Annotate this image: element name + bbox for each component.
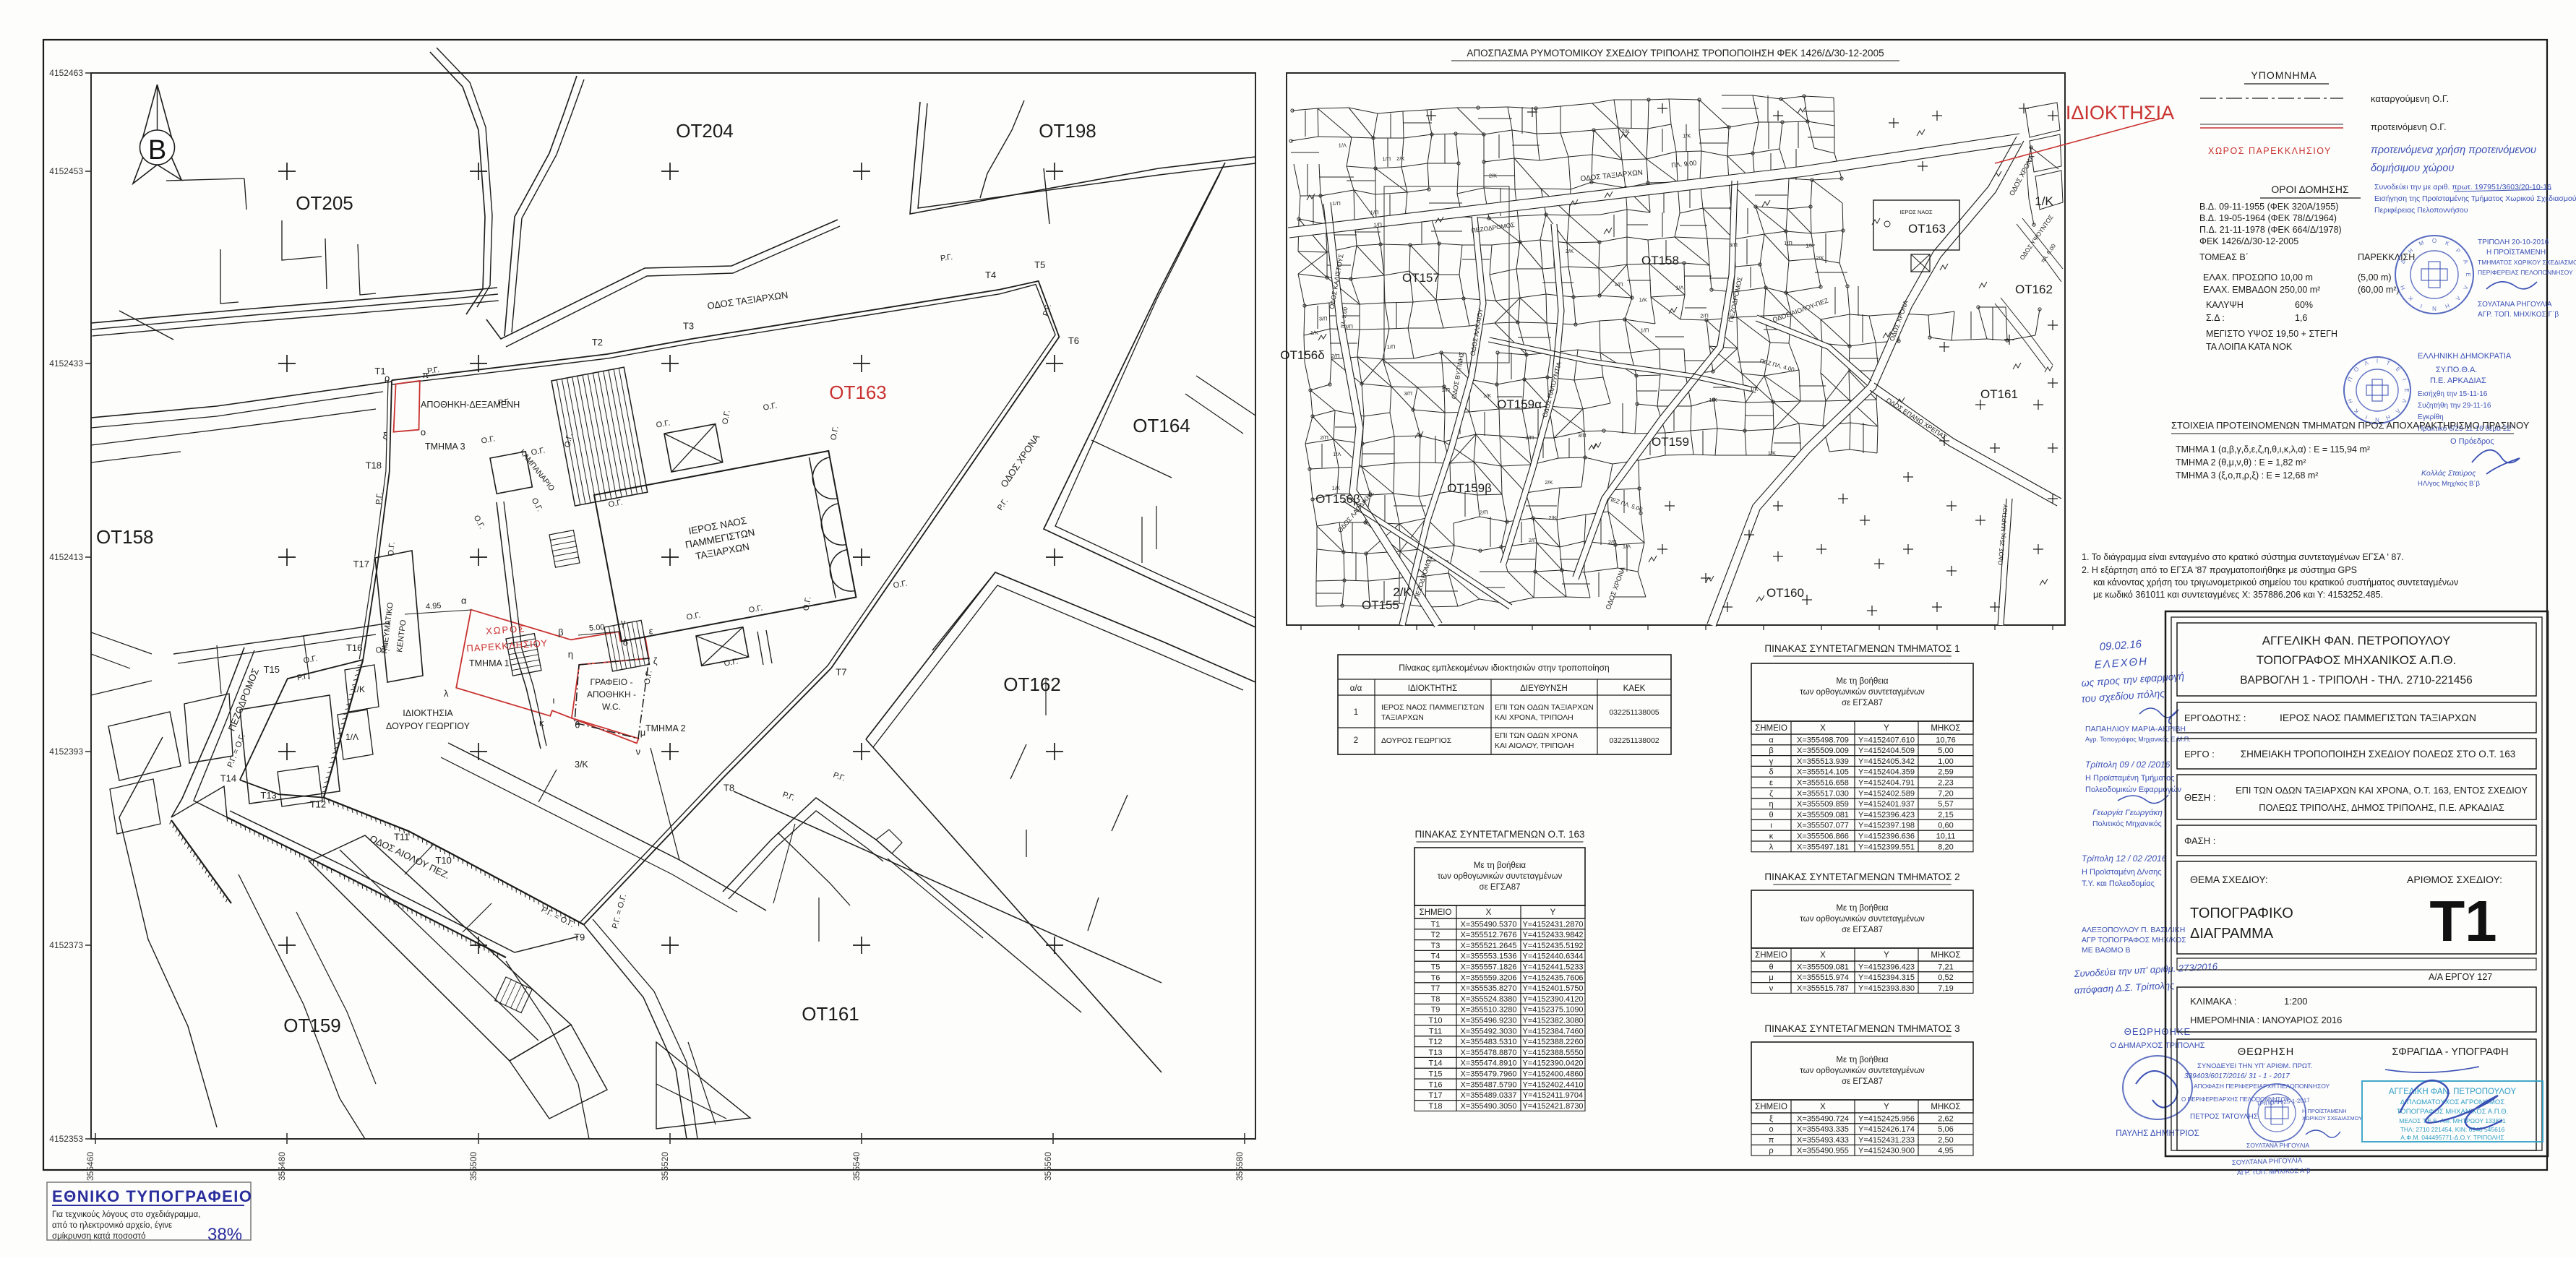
- svg-text:Κολλάς Σταύρος: Κολλάς Σταύρος: [2421, 469, 2476, 478]
- svg-text:ΟΤ161: ΟΤ161: [802, 1003, 859, 1025]
- svg-text:5,06: 5,06: [1938, 1125, 1953, 1134]
- svg-text:T18: T18: [1429, 1102, 1443, 1111]
- svg-text:T8: T8: [724, 782, 734, 793]
- svg-text:1/Κ: 1/Κ: [1709, 397, 1717, 403]
- svg-text:των ορθογωνικών συντεταγμένων: των ορθογωνικών συντεταγμένων: [1800, 688, 1925, 697]
- svg-text:Y=4152375.1090: Y=4152375.1090: [1522, 1006, 1583, 1015]
- svg-text:T2: T2: [592, 337, 603, 348]
- svg-text:Τ.Υ. και Πολεοδομίας: Τ.Υ. και Πολεοδομίας: [2082, 879, 2155, 888]
- svg-text:X=355498.709: X=355498.709: [1797, 736, 1849, 744]
- svg-text:Συζητήθη την 29-11-16: Συζητήθη την 29-11-16: [2418, 401, 2491, 410]
- svg-text:Με τη βοήθεια: Με τη βοήθεια: [1836, 677, 1889, 686]
- svg-text:ε: ε: [649, 626, 653, 637]
- svg-text:Ρ.Γ.: Ρ.Γ.: [940, 253, 953, 263]
- svg-text:10,11: 10,11: [1936, 832, 1956, 841]
- svg-text:2/Π: 2/Π: [1608, 539, 1617, 546]
- svg-text:355580: 355580: [1235, 1152, 1245, 1181]
- svg-text:Η ΠΡΟΪΣΤΑΜΕΝΗ: Η ΠΡΟΪΣΤΑΜΕΝΗ: [2302, 1108, 2347, 1114]
- svg-text:ΑΓΓΕΛΙΚΗ ΦΑΝ. ΠΕΤΡΟΠΟΥΛΟΥ: ΑΓΓΕΛΙΚΗ ΦΑΝ. ΠΕΤΡΟΠΟΥΛΟΥ: [2262, 634, 2451, 647]
- svg-text:ΕΛΑΧ. ΕΜΒΑΔΟΝ 250,00 m²: ΕΛΑΧ. ΕΜΒΑΔΟΝ 250,00 m²: [2203, 285, 2320, 295]
- svg-text:ΟΤ158: ΟΤ158: [96, 526, 154, 548]
- svg-text:T12: T12: [1429, 1038, 1443, 1046]
- svg-text:ΤΡΙΠΟΛΗ 20-10-2016: ΤΡΙΠΟΛΗ 20-10-2016: [2478, 238, 2549, 246]
- svg-text:1/Κ: 1/Κ: [2035, 194, 2053, 208]
- svg-text:Y=4152425.956: Y=4152425.956: [1858, 1114, 1915, 1123]
- svg-text:X=355512.7676: X=355512.7676: [1461, 931, 1517, 939]
- svg-text:ΑΡΙΘΜΟΣ ΣΧΕΔΙΟΥ:: ΑΡΙΘΜΟΣ ΣΧΕΔΙΟΥ:: [2407, 874, 2502, 885]
- svg-text:7,19: 7,19: [1938, 984, 1953, 993]
- svg-text:T14: T14: [1429, 1059, 1443, 1068]
- svg-text:Y=4152396.636: Y=4152396.636: [1858, 832, 1915, 841]
- svg-text:X=355493.335: X=355493.335: [1797, 1125, 1849, 1134]
- svg-text:X=355474.8910: X=355474.8910: [1461, 1059, 1517, 1068]
- svg-text:ΠΟΛΕΩΣ ΤΡΙΠΟΛΗΣ, ΔΗΜΟΣ ΤΡΙΠΟΛΗ: ΠΟΛΕΩΣ ΤΡΙΠΟΛΗΣ, ΔΗΜΟΣ ΤΡΙΠΟΛΗΣ, Π.Ε. ΑΡ…: [2259, 802, 2504, 813]
- svg-text:Y=4152396.423: Y=4152396.423: [1858, 963, 1915, 971]
- svg-text:2/Κ: 2/Κ: [1816, 255, 1824, 262]
- svg-text:δομήσιμου χώρου: δομήσιμου χώρου: [2371, 163, 2454, 174]
- svg-text:X=355487.5790: X=355487.5790: [1461, 1080, 1517, 1089]
- svg-text:Π.Δ. 21-11-1978 (ΦΕΚ 664/Δ/197: Π.Δ. 21-11-1978 (ΦΕΚ 664/Δ/1978): [2199, 225, 2342, 235]
- svg-text:2/Κ: 2/Κ: [1548, 515, 1556, 521]
- svg-text:ν: ν: [636, 746, 641, 757]
- svg-text:Η Προϊσταμένη Δ/νσης: Η Προϊσταμένη Δ/νσης: [2082, 868, 2162, 877]
- svg-text:ΘΕΜΑ ΣΧΕΔΙΟΥ:: ΘΕΜΑ ΣΧΕΔΙΟΥ:: [2190, 874, 2268, 885]
- svg-text:ΣΗΜΕΙΟ: ΣΗΜΕΙΟ: [1755, 951, 1787, 960]
- svg-text:Πίνακας εμπλεκομένων ιδιοκτησι: Πίνακας εμπλεκομένων ιδιοκτησιών στην τρ…: [1399, 663, 1609, 673]
- svg-text:Για τεχνικούς λόγους στο σ: Για τεχνικούς λόγους στο σχεδιάγραμμα,: [52, 1210, 200, 1219]
- svg-text:T13: T13: [1429, 1049, 1443, 1057]
- svg-text:Ε: Ε: [2403, 388, 2410, 392]
- svg-text:2/Π: 2/Π: [1529, 537, 1537, 543]
- svg-text:10,76: 10,76: [1936, 736, 1956, 744]
- svg-text:Y=4152440.6344: Y=4152440.6344: [1522, 952, 1583, 961]
- svg-text:β: β: [558, 627, 563, 637]
- svg-text:2/Κ: 2/Κ: [1622, 128, 1630, 134]
- svg-text:T10: T10: [1429, 1017, 1443, 1025]
- svg-text:Y=4152402.589: Y=4152402.589: [1858, 789, 1915, 798]
- svg-text:1/Π: 1/Π: [1370, 209, 1379, 215]
- svg-text:ΤΜΗΜΑ 1 (α,β,γ,δ,ε,ζ,η,θ,ι,κ,: ΤΜΗΜΑ 1 (α,β,γ,δ,ε,ζ,η,θ,ι,κ,λ,α) : Ε = …: [2176, 444, 2370, 455]
- svg-text:1,00: 1,00: [1938, 757, 1953, 766]
- svg-text:Y=4152384.7460: Y=4152384.7460: [1522, 1027, 1583, 1036]
- svg-text:T1: T1: [1431, 920, 1441, 929]
- svg-text:ΣΟΥΛΤΑΝΑ ΡΗΓΟΥΛΙΑ: ΣΟΥΛΤΑΝΑ ΡΗΓΟΥΛΙΑ: [2246, 1142, 2310, 1149]
- svg-text:ρ: ρ: [1769, 1147, 1773, 1155]
- svg-text:ΦΑΣΗ :: ΦΑΣΗ :: [2184, 835, 2215, 846]
- svg-text:ΑΠΟΣΠΑΣΜΑ ΡΥΜΟΤΟΜΙΚΟΥ ΣΧΕΔΙΟΥ: ΑΠΟΣΠΑΣΜΑ ΡΥΜΟΤΟΜΙΚΟΥ ΣΧΕΔΙΟΥ ΤΡΙΠΟΛΗΣ Τ…: [1467, 48, 1884, 59]
- svg-text:μ: μ: [1769, 973, 1773, 982]
- svg-text:Ο Πρόεδρος: Ο Πρόεδρος: [2450, 437, 2494, 446]
- svg-text:4152353: 4152353: [49, 1134, 83, 1144]
- svg-text:ΕΡΓΟΔΟΤΗΣ :: ΕΡΓΟΔΟΤΗΣ :: [2184, 713, 2246, 723]
- svg-text:ΤΟΠΟΓΡΑΦΟΣ ΜΗΧΑΝΙΚΟΣ Α.Π.Θ.: ΤΟΠΟΓΡΑΦΟΣ ΜΗΧΑΝΙΚΟΣ Α.Π.Θ.: [2397, 1108, 2509, 1116]
- svg-text:ΔΙΕΥΘΥΝΣΗ: ΔΙΕΥΘΥΝΣΗ: [1520, 684, 1568, 693]
- svg-text:θ: θ: [575, 720, 580, 731]
- svg-text:λ: λ: [1769, 843, 1774, 851]
- svg-text:Χ: Χ: [1820, 1103, 1826, 1111]
- svg-text:α: α: [1769, 736, 1774, 744]
- svg-text:Y=4152390.0420: Y=4152390.0420: [1522, 1059, 1583, 1068]
- svg-text:θ: θ: [1769, 963, 1773, 971]
- svg-text:ΣΥ.ΠΟ.Θ.Α.: ΣΥ.ΠΟ.Θ.Α.: [2436, 366, 2477, 374]
- svg-text:3/Π: 3/Π: [1319, 316, 1328, 322]
- svg-text:Β.Δ. 19-05-1964 (ΦΕΚ 78/Δ/1964: Β.Δ. 19-05-1964 (ΦΕΚ 78/Δ/1964): [2199, 213, 2337, 223]
- svg-text:X=355490.5370: X=355490.5370: [1461, 920, 1517, 929]
- svg-text:4152433: 4152433: [49, 358, 83, 369]
- svg-text:Y=4152400.4860: Y=4152400.4860: [1522, 1070, 1583, 1079]
- svg-text:4152373: 4152373: [49, 940, 83, 950]
- svg-text:ΣΥΝΟΔΕΥΕΙ ΤΗΝ ΥΠ' ΑΡΙΘΜ. ΠΡΩΤ.: ΣΥΝΟΔΕΥΕΙ ΤΗΝ ΥΠ' ΑΡΙΘΜ. ΠΡΩΤ.: [2197, 1062, 2312, 1070]
- svg-text:Εισήγηση της Προϊσταμένης Τμήμ: Εισήγηση της Προϊσταμένης Τμήματος Χωρικ…: [2374, 194, 2576, 203]
- svg-text:Υ: Υ: [1884, 1103, 1889, 1111]
- svg-text:3/Π: 3/Π: [1404, 390, 1412, 397]
- svg-text:1/Π: 1/Π: [1615, 281, 1623, 288]
- svg-text:X=355479.7960: X=355479.7960: [1461, 1070, 1517, 1079]
- svg-text:Με τη βοήθεια: Με τη βοήθεια: [1836, 904, 1889, 913]
- svg-text:γ: γ: [1769, 757, 1774, 766]
- svg-text:ΣΤΟΙΧΕΙΑ ΠΡΟΤΕΙΝΟΜΕΝΩΝ ΤΜΗΜΑΤΩ: ΣΤΟΙΧΕΙΑ ΠΡΟΤΕΙΝΟΜΕΝΩΝ ΤΜΗΜΑΤΩΝ ΠΡΟΣ ΑΠΟ…: [2171, 420, 2530, 431]
- svg-text:ΕΛΑΧ. ΠΡΟΣΩΠΟ 10,00 m: ΕΛΑΧ. ΠΡΟΣΩΠΟ 10,00 m: [2203, 272, 2313, 283]
- svg-text:60%: 60%: [2295, 300, 2313, 310]
- svg-text:T4: T4: [985, 270, 996, 280]
- svg-text:1/Λ: 1/Λ: [1675, 285, 1683, 291]
- svg-text:2/Π: 2/Π: [1331, 353, 1340, 359]
- svg-text:X=355490.724: X=355490.724: [1797, 1114, 1849, 1123]
- svg-text:Η ΠΡΟΪΣΤΑΜΕΝΗ: Η ΠΡΟΪΣΤΑΜΕΝΗ: [2486, 248, 2546, 257]
- svg-text:ΤΜΗΜΑΤΟΣ ΧΩΡΙΚΟΥ ΣΧΕΔΙΑΣΜΟΥ: ΤΜΗΜΑΤΟΣ ΧΩΡΙΚΟΥ ΣΧΕΔΙΑΣΜΟΥ: [2478, 259, 2576, 266]
- svg-text:σμίκρυνση κατά ποσοστό: σμίκρυνση κατά ποσοστό: [52, 1232, 145, 1241]
- svg-text:ΟΡΟΙ ΔΟΜΗΣΗΣ: ΟΡΟΙ ΔΟΜΗΣΗΣ: [2271, 184, 2349, 195]
- svg-text:ΘΕΣΗ :: ΘΕΣΗ :: [2184, 792, 2215, 803]
- svg-text:ΟΤ162: ΟΤ162: [2015, 283, 2053, 296]
- svg-text:T12: T12: [310, 799, 326, 810]
- svg-text:ΟΤ198: ΟΤ198: [1039, 120, 1096, 142]
- svg-text:ΦΕΚ 1426/Δ/30-12-2005: ΦΕΚ 1426/Δ/30-12-2005: [2199, 236, 2298, 246]
- svg-text:ζ: ζ: [1769, 789, 1773, 798]
- svg-text:032251138002: 032251138002: [1609, 736, 1659, 745]
- svg-text:2,15: 2,15: [1938, 811, 1953, 819]
- svg-text:2/Κ: 2/Κ: [1489, 173, 1497, 179]
- svg-text:ΙΕΡΟΣ ΝΑΟΣ ΠΑΜΜΕΓΙΣΤΩΝ: ΙΕΡΟΣ ΝΑΟΣ ΠΑΜΜΕΓΙΣΤΩΝ: [1381, 703, 1484, 712]
- svg-text:X=355515.974: X=355515.974: [1797, 973, 1849, 982]
- svg-text:ΔΟΥΡΟΥ ΓΕΩΡΓΙΟΥ: ΔΟΥΡΟΥ ΓΕΩΡΓΙΟΥ: [386, 721, 471, 731]
- svg-text:T11: T11: [394, 831, 409, 842]
- svg-text:Y=4152441.5233: Y=4152441.5233: [1522, 963, 1583, 972]
- svg-text:ΣΗΜΕΙΟ: ΣΗΜΕΙΟ: [1755, 724, 1787, 733]
- svg-text:Γεωργία Γεωργάκη: Γεωργία Γεωργάκη: [2092, 809, 2163, 817]
- svg-text:ΤΜΗΜΑ 2 (θ,μ,ν,θ) : Ε = 1,82: ΤΜΗΜΑ 2 (θ,μ,ν,θ) : Ε = 1,82 m²: [2176, 457, 2306, 468]
- svg-text:Α/Α ΕΡΓΟΥ 127: Α/Α ΕΡΓΟΥ 127: [2429, 972, 2492, 982]
- svg-text:ΜΕΓΙΣΤΟ ΥΨΟΣ 19,50 + ΣΤΕΓΗ: ΜΕΓΙΣΤΟ ΥΨΟΣ 19,50 + ΣΤΕΓΗ: [2206, 329, 2337, 339]
- svg-text:ΥΠΟΜΝΗΜΑ: ΥΠΟΜΝΗΜΑ: [2251, 69, 2317, 81]
- svg-text:ΜΗΚΟΣ: ΜΗΚΟΣ: [1931, 951, 1960, 960]
- svg-text:5,57: 5,57: [1938, 800, 1953, 809]
- svg-text:Ρ.Γ.: Ρ.Γ.: [426, 366, 439, 376]
- svg-text:Y=4152405.342: Y=4152405.342: [1858, 757, 1915, 766]
- svg-text:ΟΤ164: ΟΤ164: [1133, 415, 1190, 436]
- svg-text:σε ΕΓΣΑ87: σε ΕΓΣΑ87: [1480, 883, 1521, 892]
- svg-text:ΟΤ163: ΟΤ163: [1908, 222, 1946, 236]
- svg-text:προτεινόμενα χρήση προτεινόμεν: προτεινόμενα χρήση προτεινόμενου: [2371, 145, 2536, 156]
- svg-text:1:200: 1:200: [2284, 996, 2308, 1007]
- svg-text:3/Π: 3/Π: [1578, 432, 1587, 439]
- svg-text:ΟΤ163: ΟΤ163: [829, 382, 887, 403]
- svg-text:Y=4152393.830: Y=4152393.830: [1858, 984, 1915, 993]
- svg-text:ΙΕΡΟΣ ΝΑΟΣ: ΙΕΡΟΣ ΝΑΟΣ: [1899, 209, 1933, 215]
- svg-text:4152463: 4152463: [49, 68, 83, 78]
- svg-text:X=355509.009: X=355509.009: [1797, 746, 1849, 755]
- svg-text:Y=4152388.5550: Y=4152388.5550: [1522, 1049, 1583, 1057]
- svg-text:ξ: ξ: [383, 431, 387, 442]
- svg-text:1,6: 1,6: [2295, 313, 2307, 323]
- svg-text:1: 1: [1354, 708, 1358, 717]
- svg-text:ΤΜΗΜΑ 2: ΤΜΗΜΑ 2: [645, 723, 686, 733]
- svg-text:355520: 355520: [660, 1152, 670, 1181]
- svg-text:38%: 38%: [207, 1225, 242, 1244]
- svg-text:1/Λ: 1/Λ: [1339, 142, 1347, 149]
- svg-text:ΚΑΙ ΧΡΟΝΑ, ΤΡΙΠΟΛΗ: ΚΑΙ ΧΡΟΝΑ, ΤΡΙΠΟΛΗ: [1495, 713, 1573, 722]
- svg-text:ΠΙΝΑΚΑΣ ΣΥΝΤΕΤΑΓΜΕΝΩΝ Ο.Τ. 163: ΠΙΝΑΚΑΣ ΣΥΝΤΕΤΑΓΜΕΝΩΝ Ο.Τ. 163: [1414, 829, 1584, 840]
- svg-text:ν: ν: [1769, 984, 1774, 993]
- svg-text:Υ: Υ: [1550, 908, 1556, 917]
- svg-text:ο: ο: [421, 427, 426, 438]
- svg-text:Χ: Χ: [1820, 724, 1826, 733]
- svg-text:ΤΟΠΟΓΡΑΦΙΚΟ: ΤΟΠΟΓΡΑΦΙΚΟ: [2190, 905, 2293, 921]
- svg-text:ΟΤ159β: ΟΤ159β: [1447, 481, 1492, 495]
- svg-text:ΟΤ159α: ΟΤ159α: [1497, 397, 1542, 411]
- svg-text:1/Κ: 1/Κ: [1639, 297, 1647, 304]
- svg-text:2/Κ: 2/Κ: [1545, 479, 1553, 486]
- svg-text:2/Π: 2/Π: [1480, 509, 1488, 515]
- svg-text:Σ.Δ :: Σ.Δ :: [2206, 313, 2225, 323]
- svg-text:ΑΛΕΞΟΠΟΥΛΟΥ Π. ΒΑΣΙΛΙΚΗ: ΑΛΕΞΟΠΟΥΛΟΥ Π. ΒΑΣΙΛΙΚΗ: [2082, 926, 2185, 934]
- svg-text:1/Π: 1/Π: [1387, 343, 1396, 350]
- svg-text:X=355493.433: X=355493.433: [1797, 1136, 1849, 1145]
- svg-text:1. Το διάγραμμα είναι ενταγμέν: 1. Το διάγραμμα είναι ενταγμένο στο κρατ…: [2082, 552, 2404, 562]
- svg-text:B: B: [148, 135, 166, 165]
- svg-text:α/α: α/α: [1350, 684, 1362, 693]
- svg-text:Y=4152401.5750: Y=4152401.5750: [1522, 984, 1583, 993]
- svg-text:X=355557.1826: X=355557.1826: [1461, 963, 1517, 972]
- svg-text:Ο ΔΗΜΑΡΧΟΣ ΤΡΙΠΟΛΗΣ: Ο ΔΗΜΑΡΧΟΣ ΤΡΙΠΟΛΗΣ: [2110, 1041, 2204, 1050]
- svg-text:ΚΛΙΜΑΚΑ :: ΚΛΙΜΑΚΑ :: [2190, 996, 2236, 1007]
- svg-text:4,95: 4,95: [1938, 1147, 1953, 1155]
- svg-text:1/Κ: 1/Κ: [1483, 392, 1491, 399]
- svg-text:Y=4152402.4410: Y=4152402.4410: [1522, 1080, 1583, 1089]
- svg-text:1/Π: 1/Π: [1373, 221, 1382, 228]
- svg-text:ΧΩΡΙΚΟΥ ΣΧΕΔΙΑΣΜΟΥ: ΧΩΡΙΚΟΥ ΣΧΕΔΙΑΣΜΟΥ: [2302, 1115, 2362, 1122]
- svg-text:Τρίπολη 12 / 02 /2016: Τρίπολη 12 / 02 /2016: [2082, 853, 2167, 864]
- svg-text:ΙΔΙΟΚΤΗΣΙΑ: ΙΔΙΟΚΤΗΣΙΑ: [2066, 102, 2174, 124]
- svg-text:4152393: 4152393: [49, 746, 83, 757]
- svg-text:X=355524.8380: X=355524.8380: [1461, 995, 1517, 1004]
- svg-text:Y=4152433.9842: Y=4152433.9842: [1522, 931, 1583, 939]
- svg-text:ΤΜΗΜΑ 3: ΤΜΗΜΑ 3: [425, 442, 465, 452]
- svg-text:Ο.Γ.: Ο.Γ.: [387, 541, 397, 556]
- svg-text:Α.Φ.Μ. 044495771-Δ.Ο.Υ. ΤΡΙΠΟΛ: Α.Φ.Μ. 044495771-Δ.Ο.Υ. ΤΡΙΠΟΛΗΣ: [2400, 1134, 2504, 1141]
- svg-text:ΟΤ159: ΟΤ159: [283, 1015, 341, 1036]
- svg-text:Ι: Ι: [2377, 358, 2378, 364]
- svg-text:Περιφέρειας Πελοποννήσου: Περιφέρειας Πελοποννήσου: [2374, 206, 2468, 215]
- svg-text:των ορθογωνικών συντεταγμένων: των ορθογωνικών συντεταγμένων: [1800, 1067, 1925, 1075]
- svg-text:X=355490.955: X=355490.955: [1797, 1147, 1849, 1155]
- svg-text:X=355535.8270: X=355535.8270: [1461, 984, 1517, 993]
- svg-text:Ρ.Γ.: Ρ.Γ.: [374, 492, 384, 505]
- svg-text:4.95: 4.95: [426, 601, 442, 611]
- svg-text:T18: T18: [366, 460, 382, 470]
- svg-text:ο: ο: [1769, 1125, 1773, 1134]
- svg-text:X=355521.2645: X=355521.2645: [1461, 942, 1517, 950]
- svg-text:Ο: Ο: [2432, 238, 2437, 244]
- svg-text:ΑΓΡ. ΤΟΠ. ΜΗΧ/ΚΟΣ Γ΄β: ΑΓΡ. ΤΟΠ. ΜΗΧ/ΚΟΣ Γ΄β: [2478, 310, 2559, 319]
- svg-text:Y=4152430.900: Y=4152430.900: [1858, 1147, 1915, 1155]
- svg-text:X=355553.1536: X=355553.1536: [1461, 952, 1517, 961]
- svg-text:καταργούμενη Ο.Γ.: καταργούμενη Ο.Γ.: [2371, 93, 2449, 104]
- svg-text:Χ: Χ: [1820, 951, 1826, 960]
- svg-text:X=355514.105: X=355514.105: [1797, 768, 1849, 777]
- svg-text:T15: T15: [264, 664, 280, 675]
- svg-text:ΟΤ156δ: ΟΤ156δ: [1280, 348, 1324, 362]
- svg-text:Y=4152435.5192: Y=4152435.5192: [1522, 942, 1583, 950]
- svg-text:T4: T4: [1431, 952, 1441, 961]
- svg-text:1/Λ: 1/Λ: [1333, 451, 1341, 457]
- svg-text:δ: δ: [1769, 768, 1773, 777]
- svg-text:Y=4152399.551: Y=4152399.551: [1858, 843, 1915, 851]
- svg-text:λ: λ: [444, 688, 449, 699]
- svg-text:339403/6017/2016/ 31 - 1 - 201: 339403/6017/2016/ 31 - 1 - 2017: [2184, 1072, 2290, 1080]
- svg-text:T17: T17: [1429, 1091, 1443, 1100]
- svg-text:σε ΕΓΣΑ87: σε ΕΓΣΑ87: [1842, 926, 1883, 934]
- svg-text:T16: T16: [346, 642, 362, 653]
- svg-text:Αγρ. Τοπογράφος Μηχανικός Ε.Μ.: Αγρ. Τοπογράφος Μηχανικός Ε.Μ.Π.: [2085, 736, 2191, 743]
- svg-text:Y=4152435.7606: Y=4152435.7606: [1522, 973, 1583, 982]
- svg-text:ΟΤ157: ΟΤ157: [1402, 271, 1440, 285]
- svg-text:2/Κ: 2/Κ: [1393, 585, 1412, 599]
- svg-text:ΟΤ204: ΟΤ204: [676, 120, 734, 142]
- svg-text:T8: T8: [1431, 995, 1441, 1004]
- svg-text:ΠΑΡΕΚΚΛΙΣΗ: ΠΑΡΕΚΚΛΙΣΗ: [2358, 252, 2415, 262]
- svg-text:Y=4152407.610: Y=4152407.610: [1858, 736, 1915, 744]
- svg-text:ΣΦΡΑΓΙΔΑ - ΥΠΟΓΡΑΦΗ: ΣΦΡΑΓΙΔΑ - ΥΠΟΓΡΑΦΗ: [2392, 1046, 2508, 1058]
- svg-text:4152413: 4152413: [49, 552, 83, 562]
- svg-text:(60,00 m²): (60,00 m²): [2358, 285, 2400, 295]
- svg-text:X=355509.081: X=355509.081: [1797, 963, 1849, 971]
- svg-text:T11: T11: [1429, 1027, 1442, 1036]
- svg-text:T17: T17: [353, 559, 369, 569]
- svg-text:ΜΕ ΒΑΘΜΟ Β: ΜΕ ΒΑΘΜΟ Β: [2082, 946, 2130, 955]
- svg-text:X=355489.0337: X=355489.0337: [1461, 1091, 1517, 1100]
- svg-text:Με τη βοήθεια: Με τη βοήθεια: [1836, 1056, 1889, 1064]
- svg-text:7,20: 7,20: [1938, 789, 1953, 798]
- svg-text:θ: θ: [1769, 811, 1773, 819]
- svg-text:T7: T7: [1431, 984, 1441, 993]
- svg-text:ΙΔΙΟΚΤΗΤΗΣ: ΙΔΙΟΚΤΗΤΗΣ: [1408, 684, 1457, 693]
- svg-text:ΙΔΙΟΚΤΗΣΙΑ: ΙΔΙΟΚΤΗΣΙΑ: [403, 708, 453, 718]
- svg-text:Με τη βοήθεια: Με τη βοήθεια: [1474, 861, 1527, 870]
- svg-text:από το ηλεκτρονικό αρχείο, έγι: από το ηλεκτρονικό αρχείο, έγινε: [52, 1221, 172, 1230]
- svg-text:ΣΗΜΕΙΑΚΗ ΤΡΟΠΟΠΟΙΗΣΗ ΣΧΕΔΙΟΥ Π: ΣΗΜΕΙΑΚΗ ΤΡΟΠΟΠΟΙΗΣΗ ΣΧΕΔΙΟΥ ΠΟΛΕΩΣ ΣΤΟ …: [2241, 749, 2516, 759]
- svg-text:2/Κ: 2/Κ: [1396, 155, 1404, 162]
- svg-text:X=355559.3206: X=355559.3206: [1461, 973, 1517, 982]
- svg-text:ΚΑΕΚ: ΚΑΕΚ: [1623, 684, 1646, 693]
- svg-text:1/Π: 1/Π: [1332, 200, 1341, 207]
- svg-text:ΟΤ159: ΟΤ159: [1652, 435, 1689, 449]
- svg-text:ΔΙΑΓΡΑΜΜΑ: ΔΙΑΓΡΑΜΜΑ: [2190, 926, 2274, 942]
- svg-text:Τ1: Τ1: [2429, 889, 2496, 953]
- svg-text:X=355510.3280: X=355510.3280: [1461, 1006, 1517, 1015]
- svg-text:η: η: [1769, 800, 1773, 809]
- svg-text:2,62: 2,62: [1938, 1114, 1953, 1123]
- svg-text:ΟΤ155: ΟΤ155: [1362, 598, 1399, 612]
- svg-text:ΗΛ/γος Μηχ/κός Β΄β: ΗΛ/γος Μηχ/κός Β΄β: [2418, 480, 2481, 488]
- svg-text:Y=4152404.359: Y=4152404.359: [1858, 768, 1915, 777]
- svg-text:X=355478.8870: X=355478.8870: [1461, 1049, 1517, 1057]
- svg-text:ΟΤ156β: ΟΤ156β: [1315, 492, 1360, 506]
- svg-text:T15: T15: [1429, 1070, 1443, 1079]
- svg-text:2: 2: [1354, 736, 1358, 745]
- svg-text:0,60: 0,60: [1938, 822, 1953, 830]
- svg-text:ΕΛΛΗΝΙΚΗ ΔΗΜΟΚΡΑΤΙΑ: ΕΛΛΗΝΙΚΗ ΔΗΜΟΚΡΑΤΙΑ: [2418, 352, 2512, 361]
- svg-text:Y=4152396.423: Y=4152396.423: [1858, 811, 1915, 819]
- svg-text:2/Π: 2/Π: [1320, 434, 1328, 441]
- svg-text:Y=4152404.509: Y=4152404.509: [1858, 746, 1915, 755]
- svg-text:Πολιτικός Μηχανικός: Πολιτικός Μηχανικός: [2092, 819, 2162, 828]
- svg-text:1/Κ: 1/Κ: [1332, 485, 1340, 491]
- svg-text:X=355516.658: X=355516.658: [1797, 779, 1849, 788]
- svg-text:X=355506.866: X=355506.866: [1797, 832, 1849, 841]
- svg-text:Ε: Ε: [2465, 272, 2471, 276]
- svg-text:ΕΠΙ ΤΩΝ ΟΔΩΝ ΤΑΞΙΑΡΧΩΝ: ΕΠΙ ΤΩΝ ΟΔΩΝ ΤΑΞΙΑΡΧΩΝ: [1495, 703, 1594, 712]
- svg-text:355540: 355540: [851, 1152, 862, 1181]
- svg-text:355500: 355500: [468, 1152, 478, 1181]
- svg-text:T6: T6: [1431, 973, 1441, 982]
- svg-text:ΠΙΝΑΚΑΣ ΣΥΝΤΕΤΑΓΜΕΝΩΝ ΤΜΗΜΑΤΟΣ: ΠΙΝΑΚΑΣ ΣΥΝΤΕΤΑΓΜΕΝΩΝ ΤΜΗΜΑΤΟΣ 1: [1764, 643, 1959, 654]
- svg-text:ΤΟΜΕΑΣ Β΄: ΤΟΜΕΑΣ Β΄: [2199, 252, 2249, 262]
- svg-text:1/Κ: 1/Κ: [1683, 133, 1691, 139]
- svg-text:των ορθογωνικών συντεταγμένων: των ορθογωνικών συντεταγμένων: [1800, 915, 1925, 924]
- svg-text:ΙΕΡΟΣ ΝΑΟΣ ΠΑΜΜΕΓΙΣΤΩΝ ΤΑΞΙΑΡΧ: ΙΕΡΟΣ ΝΑΟΣ ΠΑΜΜΕΓΙΣΤΩΝ ΤΑΞΙΑΡΧΩΝ: [2280, 712, 2476, 723]
- svg-text:ζ: ζ: [653, 655, 658, 666]
- svg-text:2/Π: 2/Π: [1525, 434, 1534, 441]
- svg-text:1/Κ: 1/Κ: [352, 684, 365, 694]
- svg-text:X=355517.030: X=355517.030: [1797, 789, 1849, 798]
- svg-text:ι: ι: [553, 694, 555, 705]
- svg-text:1/Κ: 1/Κ: [1768, 449, 1776, 456]
- svg-text:5,00: 5,00: [1938, 746, 1953, 755]
- svg-text:ΕΘΝΙΚΟ ΤΥΠΟΓΡΑΦΕΙΟ: ΕΘΝΙΚΟ ΤΥΠΟΓΡΑΦΕΙΟ: [52, 1187, 253, 1205]
- svg-text:T16: T16: [1429, 1080, 1443, 1089]
- svg-text:2. Η εξάρτηση από το ΕΓΣΑ '87: 2. Η εξάρτηση από το ΕΓΣΑ '87 πραγματοπο…: [2082, 565, 2357, 575]
- svg-text:ΠΙΝΑΚΑΣ ΣΥΝΤΕΤΑΓΜΕΝΩΝ ΤΜΗΜΑΤΟΣ: ΠΙΝΑΚΑΣ ΣΥΝΤΕΤΑΓΜΕΝΩΝ ΤΜΗΜΑΤΟΣ 3: [1764, 1023, 1959, 1034]
- svg-text:Ν: Ν: [2432, 305, 2437, 311]
- svg-text:X=355513.939: X=355513.939: [1797, 757, 1849, 766]
- svg-text:Τρίπολη 09 / 02 /2016: Τρίπολη 09 / 02 /2016: [2085, 759, 2171, 770]
- svg-text:1/Π: 1/Π: [1641, 327, 1649, 333]
- svg-text:ΤΟΠΟΓΡΑΦΟΣ ΜΗΧΑΝΙΚΟΣ Α.Π.Θ.: ΤΟΠΟΓΡΑΦΟΣ ΜΗΧΑΝΙΚΟΣ Α.Π.Θ.: [2257, 653, 2457, 667]
- svg-text:η: η: [568, 649, 573, 660]
- svg-text:ΟΤ158: ΟΤ158: [1641, 254, 1679, 267]
- svg-text:ΤΜΗΜΑ 1: ΤΜΗΜΑ 1: [469, 658, 510, 668]
- svg-text:T1: T1: [374, 366, 385, 376]
- svg-text:ΕΠΙ ΤΩΝ ΟΔΩΝ ΧΡΟΝΑ: ΕΠΙ ΤΩΝ ΟΔΩΝ ΧΡΟΝΑ: [1495, 731, 1578, 740]
- svg-text:1/Κ: 1/Κ: [1310, 330, 1318, 336]
- svg-text:Y=4152382.3080: Y=4152382.3080: [1522, 1017, 1583, 1025]
- svg-text:(5,00 m): (5,00 m): [2358, 272, 2392, 283]
- svg-text:1/Κ: 1/Κ: [1806, 243, 1813, 249]
- svg-text:2,59: 2,59: [1938, 768, 1953, 777]
- svg-text:Εισήχθη την 15-11-16: Εισήχθη την 15-11-16: [2418, 390, 2488, 398]
- svg-text:ΠΕΤΡΟΣ ΤΑΤΟΥΛΗΣ: ΠΕΤΡΟΣ ΤΑΤΟΥΛΗΣ: [2190, 1113, 2258, 1121]
